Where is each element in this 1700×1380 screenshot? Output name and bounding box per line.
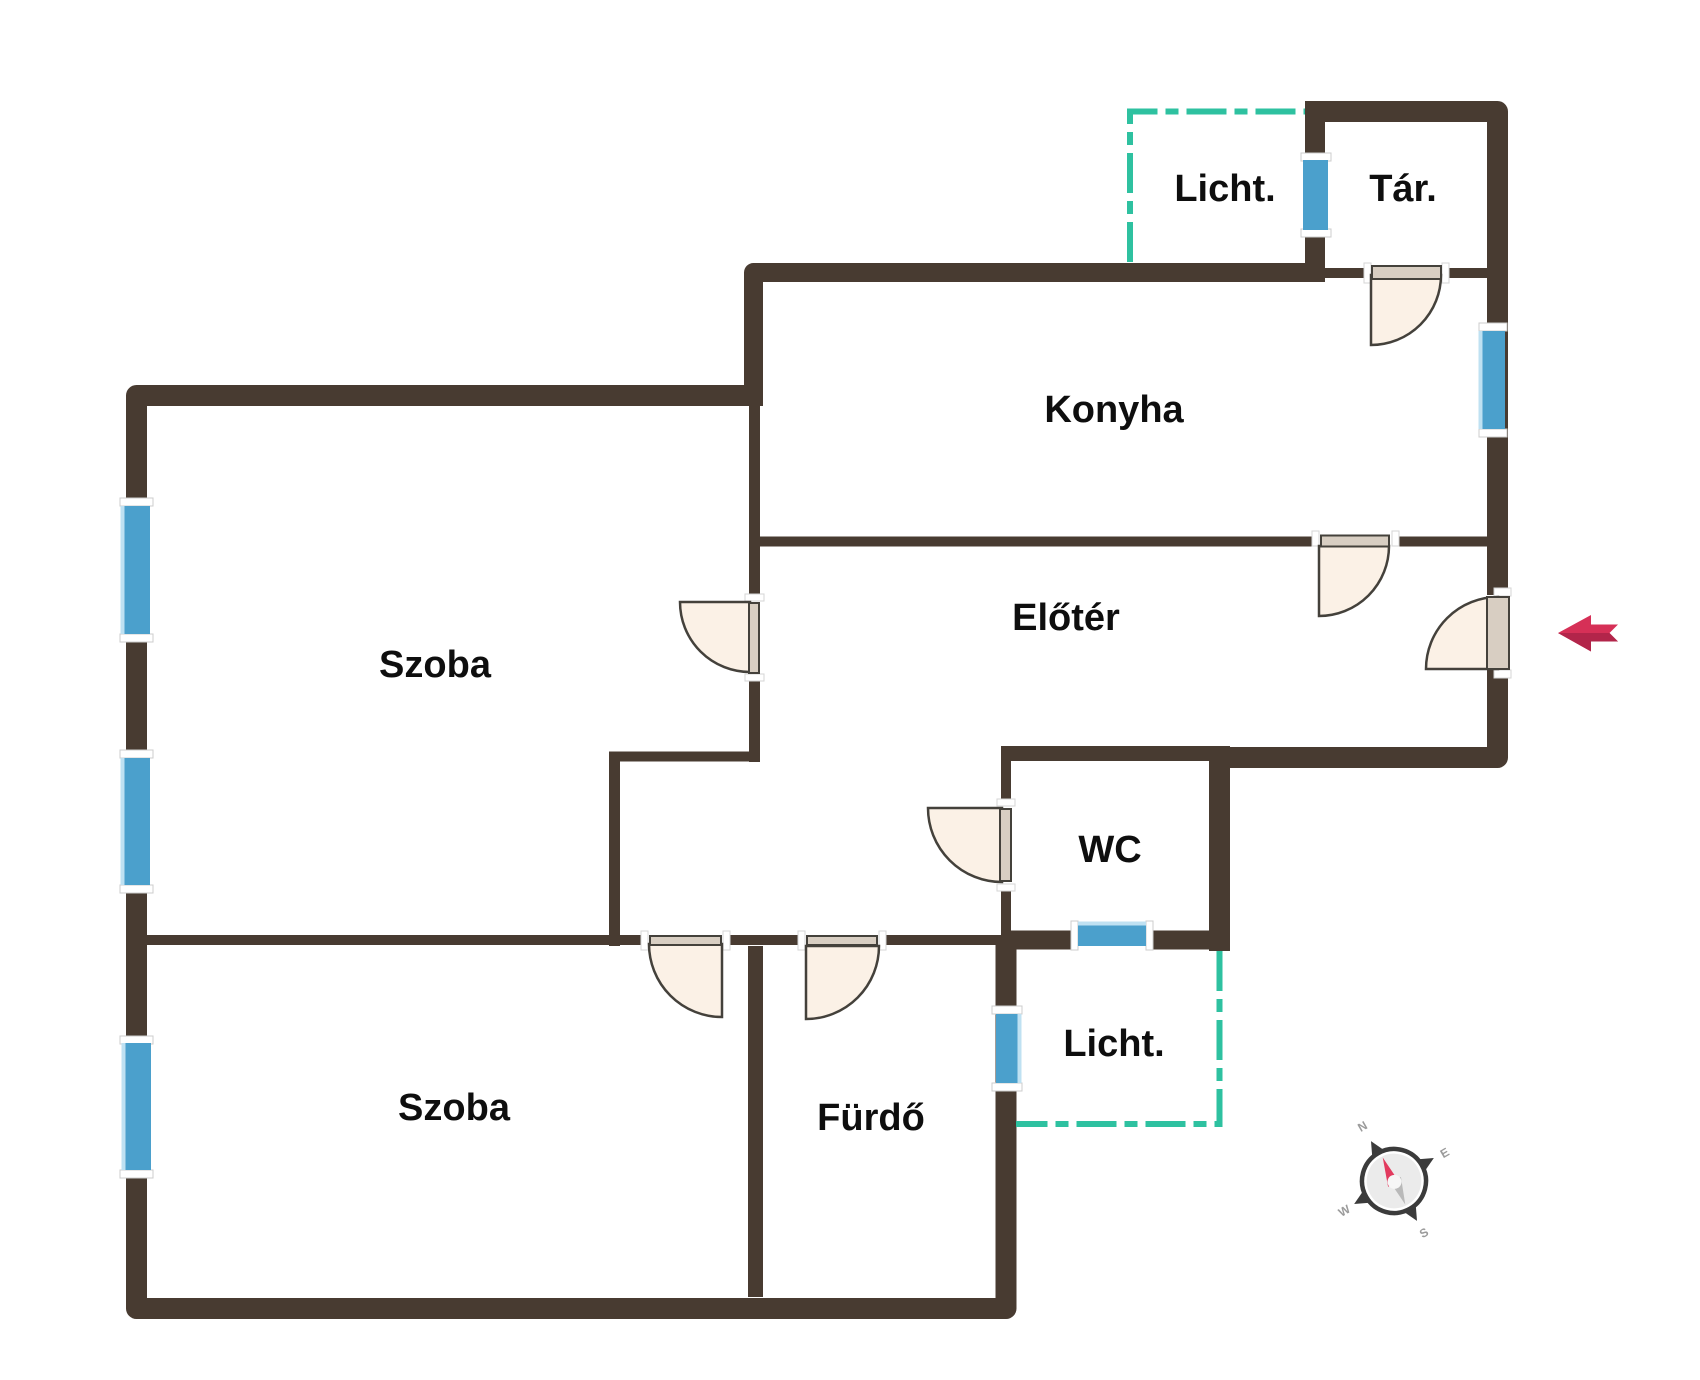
svg-text:Szoba: Szoba: [398, 1087, 511, 1129]
svg-text:Szoba: Szoba: [379, 644, 492, 686]
svg-text:Tár.: Tár.: [1369, 168, 1437, 210]
svg-text:Licht.: Licht.: [1063, 1023, 1164, 1065]
svg-text:Előtér: Előtér: [1012, 597, 1120, 639]
svg-text:Konyha: Konyha: [1044, 389, 1184, 431]
svg-text:WC: WC: [1078, 829, 1141, 871]
svg-text:Licht.: Licht.: [1174, 168, 1275, 210]
svg-text:Fürdő: Fürdő: [817, 1097, 925, 1139]
